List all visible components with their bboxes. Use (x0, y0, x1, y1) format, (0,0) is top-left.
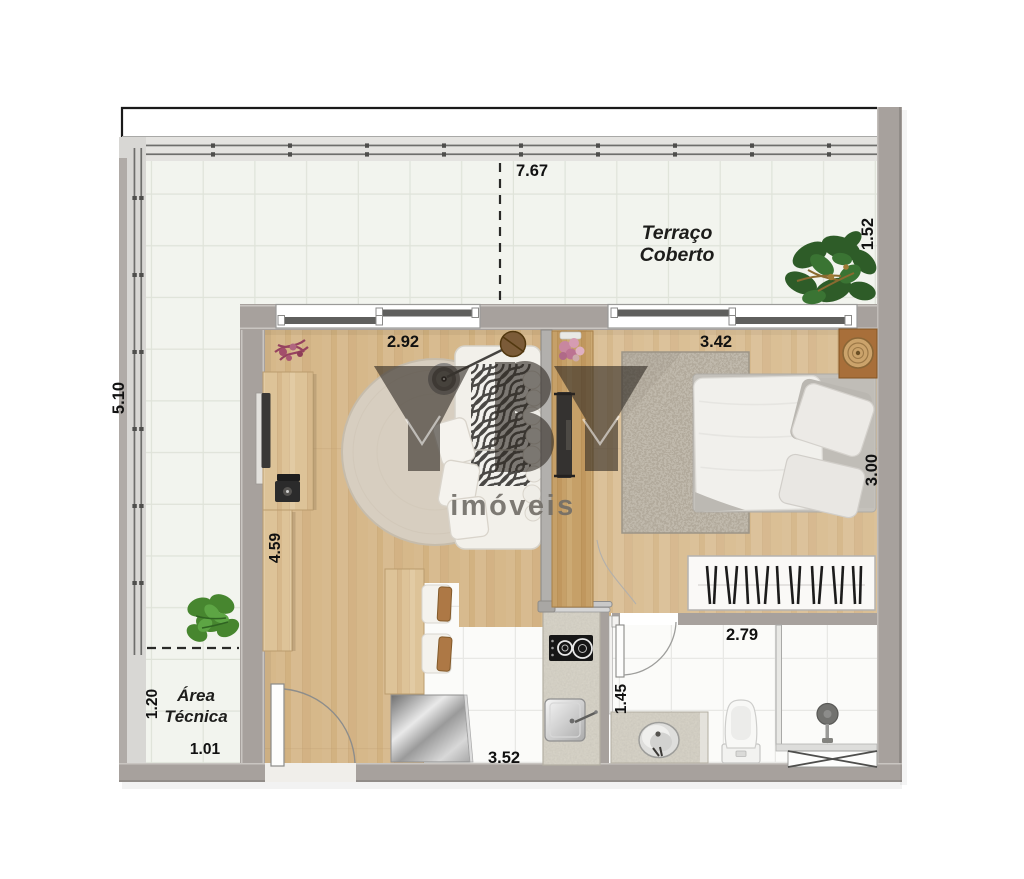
svg-text:2.79: 2.79 (726, 626, 758, 644)
svg-text:1.52: 1.52 (859, 218, 877, 250)
svg-text:imóveis: imóveis (450, 490, 576, 522)
svg-text:Coberto: Coberto (640, 244, 715, 266)
svg-text:Terraço: Terraço (642, 222, 713, 244)
svg-text:1.01: 1.01 (190, 741, 221, 758)
svg-text:Técnica: Técnica (164, 707, 227, 726)
svg-text:2.92: 2.92 (387, 333, 419, 351)
svg-text:Área: Área (176, 686, 215, 705)
svg-text:3.00: 3.00 (863, 454, 881, 486)
svg-text:1.45: 1.45 (613, 684, 630, 715)
svg-text:7.67: 7.67 (516, 162, 548, 180)
svg-text:5.10: 5.10 (110, 382, 128, 414)
svg-text:1.20: 1.20 (144, 689, 161, 719)
svg-text:3.52: 3.52 (488, 749, 520, 767)
svg-text:3.42: 3.42 (700, 333, 732, 351)
svg-text:4.59: 4.59 (267, 533, 284, 564)
